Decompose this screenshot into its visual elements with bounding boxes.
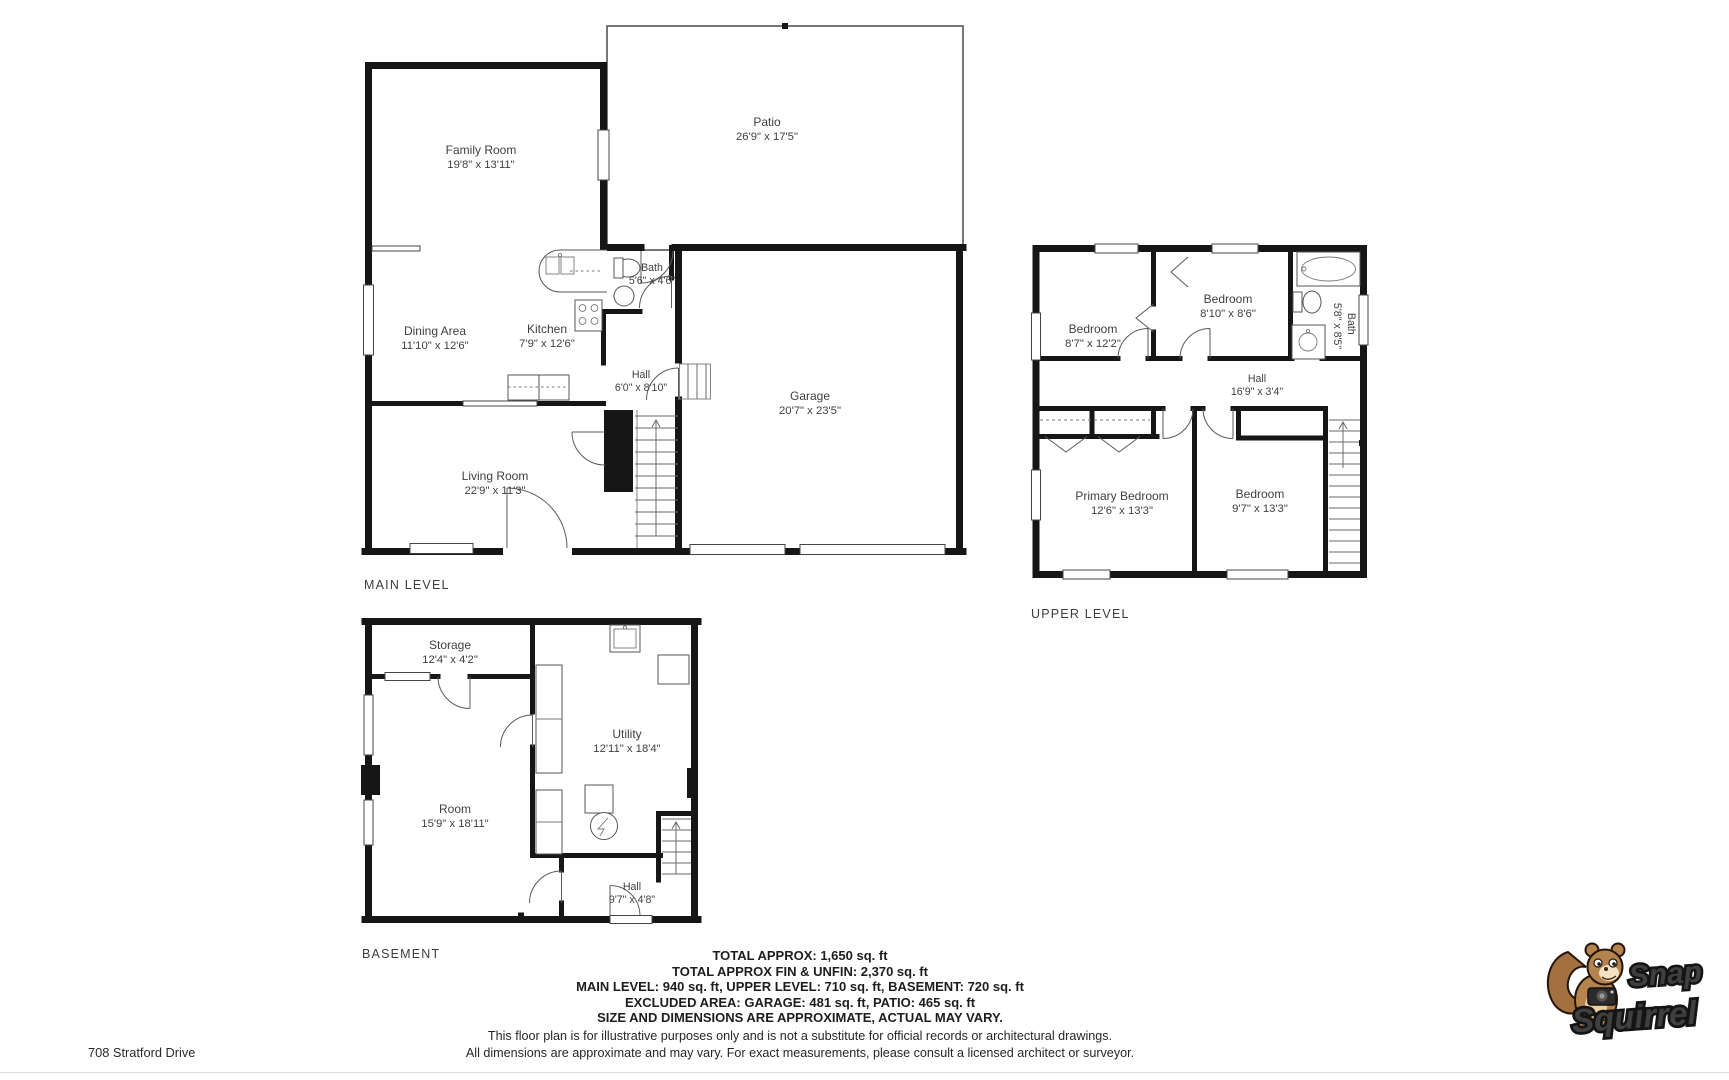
room-dims: 9'7" x 13'3" bbox=[1232, 503, 1288, 515]
room-label: Family Room bbox=[446, 143, 517, 157]
room-dims: 11'10" x 12'6" bbox=[401, 340, 468, 352]
upper-ticks bbox=[1145, 245, 1366, 578]
room-dims: 5'6" x 4'6" bbox=[629, 275, 676, 287]
floorplan-sheet: Family Room 19'8" x 13'11" Patio 26'9" x… bbox=[0, 0, 1729, 1080]
room-dims: 19'8" x 13'11" bbox=[447, 159, 514, 171]
summary-line-excluded: EXCLUDED AREA: GARAGE: 481 sq. ft, PATIO… bbox=[450, 995, 1150, 1011]
upper-level-floorplan: Bedroom 8'7" x 12'2" Bedroom 8'10" x 8'6… bbox=[1025, 240, 1375, 590]
disclaimer-line-1: This floor plan is for illustrative purp… bbox=[360, 1028, 1240, 1045]
room-dims: 26'9" x 17'5" bbox=[736, 131, 798, 143]
room-label: Room bbox=[439, 802, 471, 816]
room-label: Garage bbox=[790, 389, 830, 403]
room-label: Storage bbox=[429, 638, 471, 652]
area-summary: TOTAL APPROX: 1,650 sq. ft TOTAL APPROX … bbox=[450, 948, 1150, 1026]
snapsquirrel-logo: Snap Squirrel bbox=[1538, 936, 1726, 1070]
room-dims: 9'7" x 4'8" bbox=[609, 894, 656, 906]
summary-line-finunfin: TOTAL APPROX FIN & UNFIN: 2,370 sq. ft bbox=[450, 964, 1150, 980]
basement-stairs bbox=[662, 819, 691, 874]
room-dims: 12'4" x 4'2" bbox=[422, 654, 478, 666]
room-label: Bedroom bbox=[1236, 487, 1285, 501]
room-label: Bedroom bbox=[1204, 292, 1253, 306]
room-label: Patio bbox=[753, 115, 781, 129]
room-label: Hall bbox=[623, 881, 641, 893]
room-dims: 12'11" x 18'4" bbox=[593, 743, 660, 755]
room-dims: 12'6" x 13'3" bbox=[1091, 505, 1153, 517]
page-bottom-edge bbox=[0, 1072, 1729, 1073]
bath-rotated-label: Bath 5'8" x 8'5" bbox=[1331, 303, 1361, 350]
disclaimer: This floor plan is for illustrative purp… bbox=[360, 1028, 1240, 1061]
main-level-title: MAIN LEVEL bbox=[364, 578, 450, 592]
upper-bath-fixtures bbox=[1292, 252, 1360, 359]
property-address: 708 Stratford Drive bbox=[88, 1045, 195, 1060]
summary-line-note: SIZE AND DIMENSIONS ARE APPROXIMATE, ACT… bbox=[450, 1010, 1150, 1026]
summary-line-levels: MAIN LEVEL: 940 sq. ft, UPPER LEVEL: 710… bbox=[450, 979, 1150, 995]
room-label: Dining Area bbox=[404, 324, 466, 338]
room-label: Primary Bedroom bbox=[1075, 489, 1168, 503]
room-label: Utility bbox=[612, 727, 641, 741]
room-label: Hall bbox=[632, 369, 650, 381]
logo-word-squirrel: Squirrel bbox=[1571, 994, 1699, 1040]
basement-title: BASEMENT bbox=[362, 947, 440, 961]
summary-line-total: TOTAL APPROX: 1,650 sq. ft bbox=[450, 948, 1150, 964]
basement-fixtures bbox=[361, 625, 698, 854]
room-label: Bedroom bbox=[1069, 322, 1118, 336]
upper-level-title: UPPER LEVEL bbox=[1031, 607, 1130, 621]
room-dims: 7'9" x 12'6" bbox=[519, 338, 575, 350]
room-dims: 20'7" x 23'5" bbox=[779, 405, 841, 417]
disclaimer-line-2: All dimensions are approximate and may v… bbox=[360, 1045, 1240, 1062]
room-label: Hall bbox=[1248, 373, 1266, 385]
room-dims: 16'9" x 3'4" bbox=[1231, 386, 1283, 398]
upper-doors bbox=[1040, 257, 1322, 452]
basement-floorplan: Storage 12'4" x 4'2" Utility 12'11" x 18… bbox=[358, 612, 713, 937]
room-dims: 15'9" x 18'11" bbox=[421, 818, 488, 830]
room-label: Living Room bbox=[462, 469, 529, 483]
room-label: Bath bbox=[641, 262, 663, 274]
room-dims: 22'9" x 11'3" bbox=[464, 485, 525, 497]
room-dims: 8'7" x 12'2" bbox=[1065, 338, 1121, 350]
room-label: Kitchen bbox=[527, 322, 567, 336]
room-dims: 8'10" x 8'6" bbox=[1200, 308, 1256, 320]
logo-word-snap: Snap bbox=[1628, 956, 1703, 994]
room-dims: 6'0" x 8'10" bbox=[615, 382, 667, 394]
basement-walls bbox=[365, 622, 698, 920]
main-level-floorplan: Family Room 19'8" x 13'11" Patio 26'9" x… bbox=[358, 18, 973, 563]
upper-stairs bbox=[1329, 420, 1360, 563]
